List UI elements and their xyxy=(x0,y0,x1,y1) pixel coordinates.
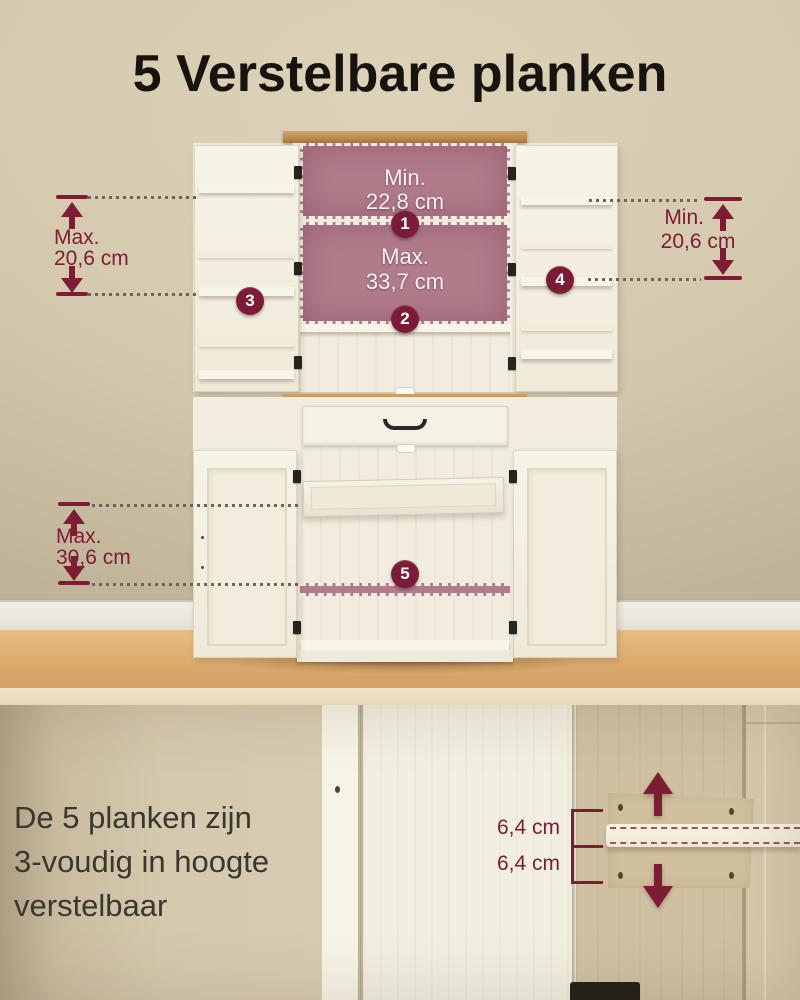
badge-1: 1 xyxy=(391,210,419,238)
hinge xyxy=(508,357,516,370)
hinge xyxy=(508,167,516,180)
leader-dotted-line xyxy=(92,583,298,586)
hutch-left-door xyxy=(194,145,299,392)
down-arrow-icon xyxy=(61,266,83,293)
page-title: 5 Verstelbare planken xyxy=(0,44,800,104)
leader-dotted-line xyxy=(589,199,701,202)
down-arrow-icon xyxy=(712,248,734,275)
measure-end-tick xyxy=(58,502,90,506)
photo-divider-strip xyxy=(0,688,800,705)
right-door-rail xyxy=(521,243,612,249)
up-arrow-icon xyxy=(712,204,734,231)
gap-bracket-tick xyxy=(571,845,603,848)
leader-dotted-line xyxy=(588,278,701,281)
left-door-rail xyxy=(199,252,294,258)
right-door-shelf xyxy=(521,350,612,359)
stitch-dashed-line xyxy=(610,827,800,829)
leader-dotted-line xyxy=(88,196,198,199)
hinge xyxy=(293,470,301,483)
left-door-rail xyxy=(199,341,294,347)
gap-label-bottom: 6,4 cm xyxy=(476,852,560,876)
right-door-rail xyxy=(521,325,612,331)
base-plinth xyxy=(297,650,513,662)
drawer-handle xyxy=(383,419,427,430)
hinge xyxy=(294,262,302,275)
shelf2-label-line1: Max. xyxy=(300,245,510,269)
measure-end-tick xyxy=(58,581,90,585)
leader-dotted-line xyxy=(92,504,300,507)
up-arrow-icon xyxy=(61,202,83,229)
door-pin-hole xyxy=(201,566,204,569)
hinge xyxy=(509,470,517,483)
up-arrow-icon xyxy=(643,772,673,816)
shelf1-label-line1: Min. xyxy=(300,166,510,190)
door-pin-hole xyxy=(201,536,204,539)
measure-end-tick xyxy=(704,197,742,201)
left-door-shelf xyxy=(199,370,294,379)
badge-2: 2 xyxy=(391,305,419,333)
detail-caption: De 5 planken zijn 3-voudig in hoogte ver… xyxy=(14,796,344,928)
gap-label-top: 6,4 cm xyxy=(476,816,560,840)
shelf-pin-hole xyxy=(335,786,340,793)
base-left-door-panel xyxy=(207,468,287,646)
hinge xyxy=(509,621,517,634)
badge-4: 4 xyxy=(546,266,574,294)
base-right-door-panel xyxy=(527,468,607,646)
hinge xyxy=(294,166,302,179)
gap-bracket-tick xyxy=(571,809,603,812)
hutch-wood-top xyxy=(283,131,527,143)
caption-line-2: 3-voudig in hoogte xyxy=(14,840,344,884)
down-arrow-icon xyxy=(63,556,85,581)
left-door-shelf xyxy=(199,184,294,193)
shelf-pin-hole xyxy=(618,804,623,811)
measure-bottom-line1: Max. xyxy=(56,526,102,547)
shelf-pin-hole xyxy=(729,872,734,879)
pullout-tray xyxy=(303,477,505,517)
caption-line-3: verstelbaar xyxy=(14,884,344,928)
leader-dotted-line xyxy=(88,293,198,296)
measure-right-line1: Min. xyxy=(656,207,704,228)
stitch-dashed-line xyxy=(610,842,800,844)
badge-5: 5 xyxy=(391,560,419,588)
adjustable-shelf xyxy=(606,824,800,847)
hinge xyxy=(293,621,301,634)
detail-back-panel xyxy=(746,705,800,1000)
product-infographic: 5 Verstelbare planken Min. 22,8 cm Max. … xyxy=(0,0,800,1000)
back-panel-rail-line xyxy=(746,722,800,724)
shelf2-label-line2: 33,7 cm xyxy=(300,270,510,294)
badge-3: 3 xyxy=(236,287,264,315)
measure-left-line1: Max. xyxy=(54,227,100,248)
caption-line-1: De 5 planken zijn xyxy=(14,796,344,840)
shelf-pin-hole xyxy=(618,872,623,879)
pullout-tray-bottom xyxy=(311,483,496,510)
hinge xyxy=(294,356,302,369)
measure-end-tick xyxy=(704,276,742,280)
measure-end-tick xyxy=(56,195,88,199)
shelf-pin-hole xyxy=(729,808,734,815)
down-arrow-icon xyxy=(643,864,673,908)
back-panel-bevel xyxy=(764,705,766,1000)
door-hinge-bottom xyxy=(570,982,640,1000)
hinge xyxy=(508,263,516,276)
gap-bracket-tick xyxy=(571,881,603,884)
